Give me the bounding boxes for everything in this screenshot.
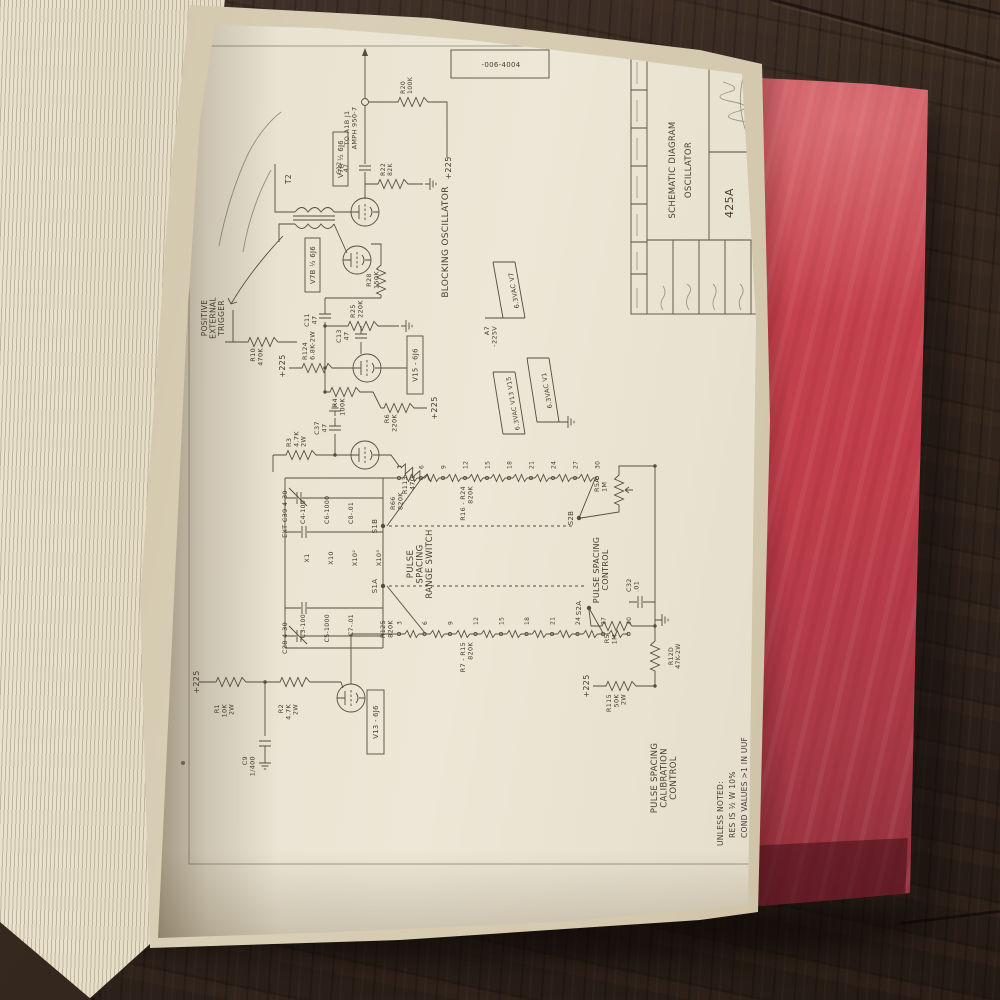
page-speck: [181, 761, 185, 765]
photo-of-open-manual: 3691215182124273036912151821242730 +225R…: [0, 0, 1000, 1000]
